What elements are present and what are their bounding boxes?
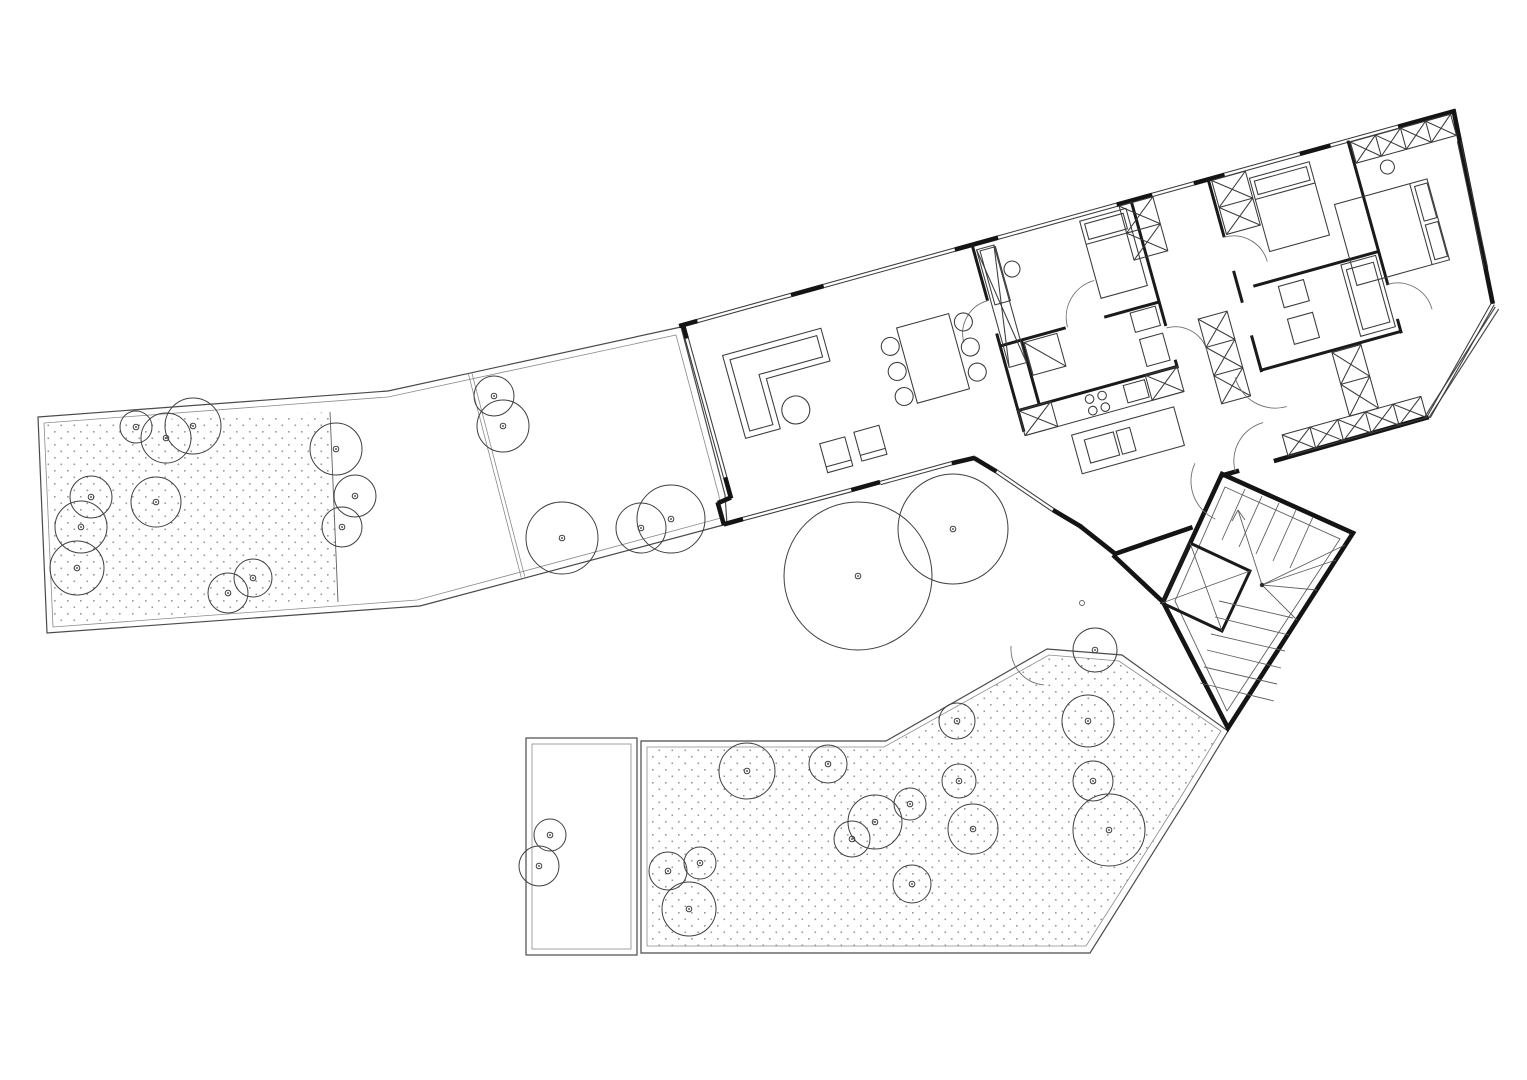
dining-chair [886,360,908,382]
facade-pier [1117,195,1153,205]
stair-tread [1211,634,1285,651]
tree [519,846,559,886]
lower-lawn-inner-line [532,744,631,949]
window-top [697,293,790,319]
bay-corner [1053,504,1082,533]
door-arc-entry [1225,423,1274,472]
desk-chair [1002,259,1022,279]
door-arc-bath2 [1235,366,1287,418]
tree [616,503,666,553]
window-east [1453,141,1495,268]
tree [784,502,932,650]
terrace-divider [472,373,525,577]
tree [477,400,529,452]
bath1-wc [1139,333,1170,366]
partition [1000,328,1066,346]
window-bay [880,462,951,482]
window-top [998,203,1117,236]
stair-arrow-origin [1260,583,1264,587]
island-sink2 [1116,427,1136,454]
window-top [823,248,954,284]
stipple-bottom-garden [648,655,1221,946]
bay-corner [1080,519,1116,562]
dining-table [897,314,970,404]
stair-winder [1262,560,1336,585]
bay-pier [952,457,975,464]
bathtub [1341,255,1395,336]
stove-burner [1100,402,1111,413]
partition [1251,335,1261,372]
pillow [1085,213,1128,239]
door-arc-bedroom1 [1057,281,1104,328]
island-sink [1084,432,1119,463]
counter-front [1025,392,1184,436]
door-arc-bath1 [1166,319,1207,360]
bay-pier [851,482,880,490]
kitchen-island [1072,407,1185,474]
stair-tread [1215,617,1289,635]
building-layer [669,109,1527,654]
counter-sink [1123,380,1149,403]
bath2-wc [1287,312,1319,344]
partition [1253,251,1378,286]
stove-burner [1084,394,1095,405]
stair-tread [1273,510,1296,561]
tree [898,474,1008,584]
bath2-sink [1278,280,1309,308]
bed-bedroom2 [1249,162,1329,252]
dining-chair [959,336,981,358]
window-top [1224,152,1299,173]
window-bay [743,487,851,518]
tree [334,475,376,517]
stair-tread [1239,496,1262,547]
floor-plan-page [0,0,1527,1080]
window-bay-diagonal [998,458,1054,520]
stair-arrow-head [1238,510,1245,520]
side-table [1379,158,1396,175]
partition [1261,331,1401,370]
floor-plan-canvas [0,0,1527,1080]
partition [1234,271,1243,303]
bay-corner [974,453,996,476]
dining-chair [879,335,901,357]
dining-chair [893,385,915,407]
pillow [1254,167,1310,195]
door-arc-living [955,301,997,343]
tree [637,485,705,553]
stove-burner [1087,405,1098,416]
armchair [820,437,853,473]
tree [474,376,514,416]
vestibule-wall [1114,527,1194,554]
west-pier [725,477,731,498]
stair-tread [1256,503,1279,554]
core-outer-wall [1163,474,1353,728]
partition [972,245,987,301]
door-arc-master [1388,275,1432,319]
door-arc-bedroom2 [1224,228,1267,271]
facade-pier [1300,145,1331,154]
path-marker [1080,601,1085,606]
facade-pier [791,286,824,295]
southwest-jog [718,502,724,525]
armchair [854,425,887,461]
tree [526,502,598,574]
armchair-back [826,460,851,467]
dining-chair [952,311,974,333]
armchair-back [860,448,885,455]
bed-line [1255,183,1315,200]
bed-master [1334,179,1449,286]
east-wall [1440,109,1506,304]
stove-burner [1097,390,1108,401]
vestibule-link-wall [1113,555,1163,602]
stair-tread [1290,517,1313,568]
window-west [688,338,726,477]
partition [1104,302,1159,317]
coffee-table [779,393,813,427]
dining-chair [966,361,988,383]
stipple-left-garden [46,412,338,625]
